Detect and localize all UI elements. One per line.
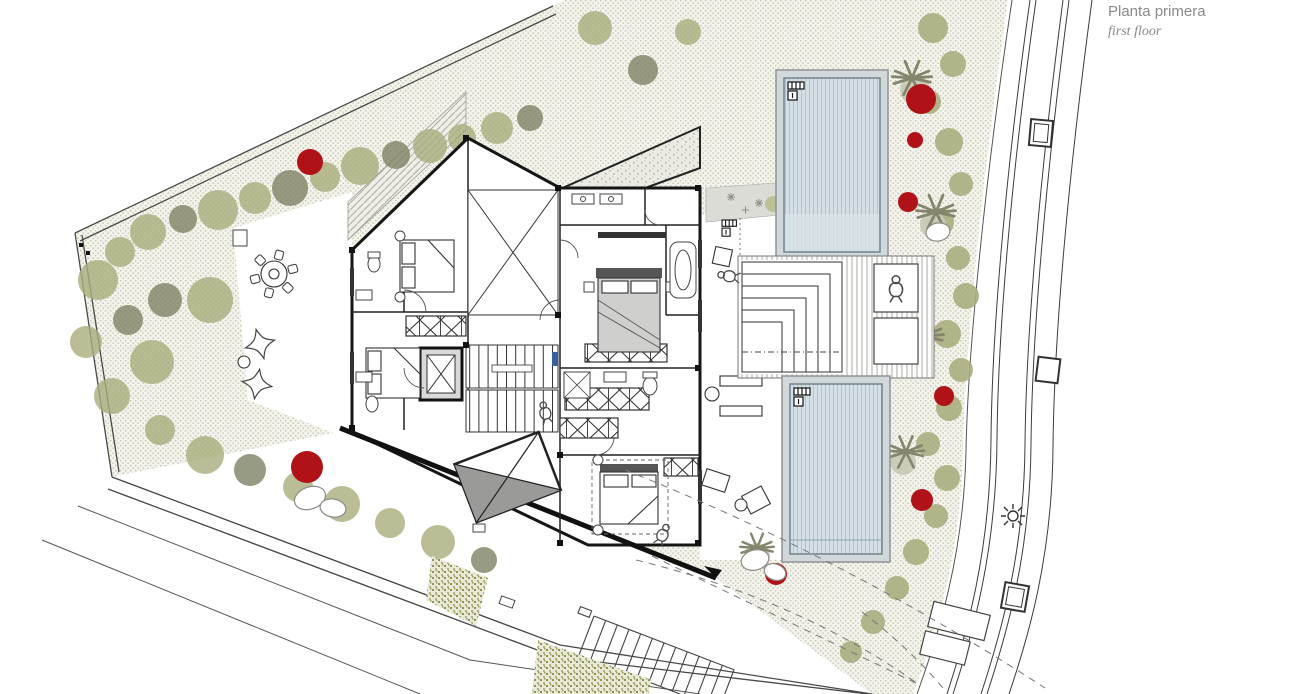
boundary-tick (79, 243, 83, 247)
red-bush (907, 132, 923, 148)
basin-bowl (581, 197, 586, 202)
drive-light (473, 524, 485, 532)
tree (628, 55, 658, 85)
pillow (604, 475, 628, 487)
sink (356, 290, 372, 300)
bed-headboard (600, 464, 658, 472)
deck-steps (742, 262, 842, 372)
upper-pool (776, 70, 888, 260)
hedge-shrub (903, 539, 929, 565)
tree (113, 305, 143, 335)
pillow (368, 351, 381, 371)
shelf (598, 232, 666, 238)
red-bush (291, 451, 323, 483)
hedge-shrub (916, 432, 940, 456)
tree (130, 340, 174, 384)
red-bush (906, 84, 936, 114)
tree (675, 19, 701, 45)
side-table (238, 356, 250, 368)
hedge-shrub (946, 246, 970, 270)
tree (421, 525, 455, 559)
sink (356, 372, 372, 382)
bedside-lamp (593, 525, 603, 535)
pillow (631, 281, 657, 293)
tree (471, 547, 497, 573)
side-table (705, 387, 719, 401)
basin-bowl (609, 197, 614, 202)
sun-lounger (874, 318, 918, 364)
bedroom-2 (366, 348, 420, 398)
hedge-shrub (840, 641, 862, 663)
hedge-shrub (935, 128, 963, 156)
floor-plan-drawing: Planta primera first floor (0, 0, 1300, 694)
title-block: Planta primera first floor (1108, 3, 1206, 39)
pillow (402, 267, 415, 288)
tree (145, 415, 175, 445)
bedside-lamp (395, 292, 405, 302)
red-bush (934, 386, 954, 406)
tree (94, 378, 130, 414)
bedroom-3 (592, 455, 668, 535)
bathtub-basin (675, 250, 691, 290)
sink (604, 372, 626, 382)
tree (413, 129, 447, 163)
hedge-shrub (940, 51, 966, 77)
terrace-porch (233, 230, 247, 246)
tree (187, 277, 233, 323)
side-table (735, 499, 747, 511)
floor-plan-canvas: Planta primera first floor (0, 0, 1300, 694)
tree (341, 147, 379, 185)
tree (517, 105, 543, 131)
tree (105, 237, 135, 267)
tree (130, 214, 166, 250)
hedge-shrub (934, 465, 960, 491)
double-height-void (468, 190, 558, 315)
pool-shallow-zone (785, 214, 879, 251)
tree (272, 170, 308, 206)
pillow (402, 243, 415, 264)
red-bush (297, 149, 323, 175)
master-bathroom (670, 242, 696, 298)
toilet-tank (643, 372, 657, 378)
tree (481, 112, 513, 144)
dining-table-center (269, 269, 279, 279)
bench (720, 406, 762, 416)
plan-title-en: first floor (1108, 24, 1162, 39)
hedge-shrub (885, 576, 909, 600)
boundary-tick (86, 251, 90, 255)
hedge-shrub (949, 358, 973, 382)
tree (239, 182, 271, 214)
toilet-tank (368, 252, 380, 258)
hedge-shrub (953, 283, 979, 309)
tree (169, 205, 197, 233)
stair-marker (552, 352, 558, 366)
tree (70, 326, 102, 358)
tree (198, 190, 238, 230)
lower-pool (782, 376, 890, 562)
hedge-shrub (918, 13, 948, 43)
bedside-lamp (395, 231, 405, 241)
armchair (712, 247, 732, 267)
hedge-shrub (949, 172, 973, 196)
toilet (643, 377, 657, 395)
bedroom-1 (395, 231, 454, 302)
tree (186, 436, 224, 474)
red-bush (911, 489, 933, 511)
plan-title-es: Planta primera (1108, 3, 1206, 20)
tree (148, 283, 182, 317)
elevator (420, 348, 462, 400)
utility-boxes (1001, 119, 1060, 612)
toilet (366, 396, 378, 412)
tree (234, 454, 266, 486)
pool-water (790, 384, 882, 554)
pool-deck (738, 256, 934, 378)
red-bush (898, 192, 918, 212)
tree (375, 508, 405, 538)
nightstand (584, 282, 594, 292)
tree (78, 260, 118, 300)
pillow (602, 281, 628, 293)
street-lamp-icon (1001, 504, 1025, 528)
bed-headboard (596, 268, 662, 278)
tree (578, 11, 612, 45)
sun-lounger (874, 264, 918, 312)
tree (382, 141, 410, 169)
bedside-lamp (593, 455, 603, 465)
